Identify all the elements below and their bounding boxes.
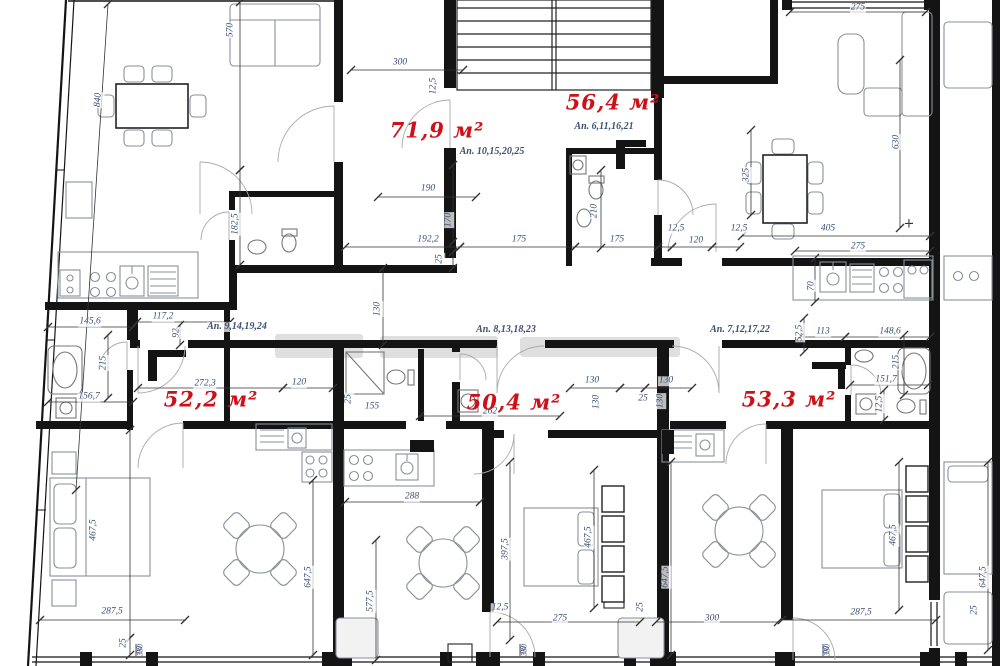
bed-right-edge [944, 462, 992, 574]
round-table-53-3 [701, 493, 778, 570]
window-jamb [476, 652, 500, 666]
stairs [457, 0, 651, 90]
wardrobe-block [838, 369, 845, 389]
floor-plan-canvas [0, 0, 1000, 666]
kitchen-right-edge [944, 256, 992, 300]
door-arc [201, 212, 229, 240]
door-arc [200, 162, 252, 214]
wall-segment [344, 421, 406, 429]
wall-segment [229, 240, 235, 265]
wardrobe-block [812, 362, 846, 369]
wall-segment [670, 421, 726, 429]
wall-segment [444, 0, 456, 88]
wall-segment [452, 345, 460, 352]
wall-segment [654, 84, 662, 180]
sink [120, 266, 144, 296]
window-jamb [920, 652, 932, 666]
kitchen-71-9 [58, 252, 198, 298]
bed-52-2 [50, 452, 150, 606]
window-jamb [80, 652, 92, 666]
sofa [864, 12, 932, 116]
wall-segment [334, 162, 343, 273]
wall-segment [45, 302, 230, 310]
wall-segment [418, 349, 424, 421]
floor-plan-drawing: 57084030012,5275630190170182,5210325192,… [0, 0, 1000, 666]
door-arc [138, 423, 183, 468]
wardrobe-block [148, 350, 186, 357]
wardrobe-block [148, 357, 157, 381]
bath-sink [248, 240, 266, 254]
bath-sink [855, 350, 873, 362]
kitchen-53-3 [662, 430, 724, 462]
wall-segment [127, 310, 133, 340]
wall-segment [229, 265, 457, 273]
coffee-table [838, 34, 864, 94]
wall-segment [616, 140, 646, 147]
wall-segment [229, 191, 340, 197]
wall-segment [722, 340, 932, 348]
wardrobe-53-3 [906, 466, 928, 582]
bathroom-53-3 [855, 348, 930, 414]
wall-segment [444, 148, 456, 258]
wall-segment [992, 0, 1000, 666]
door-arc [490, 612, 535, 657]
sofa [618, 618, 664, 658]
dish-rack [148, 266, 178, 296]
door-arc [851, 365, 881, 395]
door-arc [402, 100, 450, 148]
wall-segment [781, 421, 793, 620]
wall-segment [793, 421, 929, 429]
wall-segment [651, 0, 664, 97]
sofa [336, 618, 378, 658]
wardrobe-50-4 [602, 486, 624, 602]
round-table-50-4 [405, 525, 482, 602]
washing-machine [856, 394, 876, 414]
wall-segment [770, 0, 778, 84]
kitchen-50-4 [344, 440, 434, 486]
window-jamb [955, 652, 967, 666]
dimension-line [76, 4, 108, 490]
window-jamb [440, 652, 452, 666]
wall-segment [36, 421, 133, 429]
door-arc [658, 180, 693, 215]
wall-segment [494, 430, 504, 438]
round-table-52-2 [222, 511, 299, 588]
window-jamb [775, 652, 795, 666]
kitchen-counter [58, 252, 198, 298]
washing-machine [56, 398, 76, 418]
washing-machine [570, 156, 586, 174]
wall-segment [183, 421, 340, 429]
wall-segment [566, 148, 662, 154]
dining-table [763, 155, 807, 223]
wall-segment [616, 147, 625, 169]
wall-segment [224, 310, 230, 421]
stove [880, 268, 903, 293]
wall-segment [664, 76, 778, 84]
kitchen-52-2 [256, 424, 332, 482]
wall-segment [334, 0, 343, 102]
sofa [944, 592, 992, 644]
dish-rack [850, 264, 874, 292]
bath-sink [577, 209, 591, 227]
toilet [282, 234, 296, 252]
bed-53-3 [822, 490, 902, 568]
wall-segment [452, 382, 460, 421]
cabinet [66, 182, 92, 218]
wall-segment [548, 430, 658, 438]
bathroom-71-9 [248, 229, 297, 254]
window-jamb [782, 0, 792, 10]
dining-table [116, 84, 188, 128]
door-arc [99, 342, 127, 370]
wall-segment [845, 395, 851, 421]
sofa [230, 4, 320, 66]
door-arc [278, 106, 334, 162]
wall-segment [229, 265, 237, 310]
wall-segment [566, 148, 572, 266]
toilet [897, 399, 915, 413]
stove [91, 273, 116, 297]
window-jamb [924, 0, 934, 10]
wall-segment [229, 191, 235, 210]
furniture-layer [48, 4, 992, 662]
door-arc [668, 204, 716, 252]
window-jamb [146, 652, 158, 666]
sofa [944, 22, 992, 88]
sink [820, 262, 846, 292]
toilet [387, 370, 405, 384]
door-arc [793, 618, 835, 660]
bathtub [898, 348, 930, 394]
door-arc [726, 424, 766, 464]
bathroom-56-4 [570, 156, 604, 227]
wall-segment [651, 258, 682, 266]
wall-segment [482, 421, 494, 612]
wall-segment [545, 340, 674, 348]
